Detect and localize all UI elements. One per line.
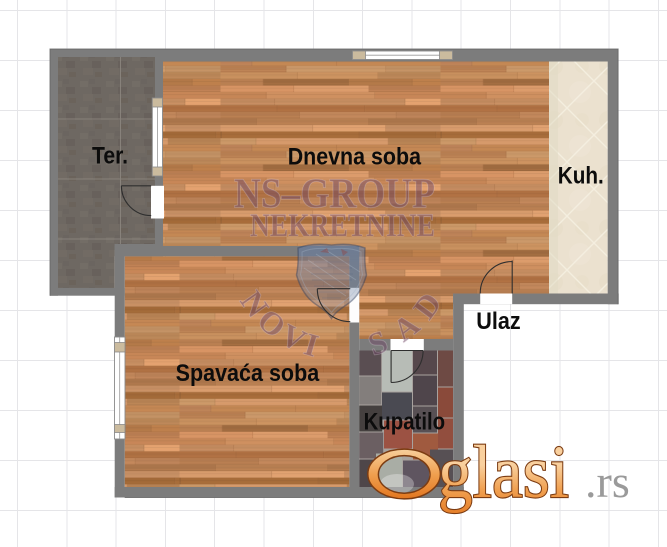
svg-text:glasi: glasi <box>438 431 569 514</box>
svg-text:NEKRETNINE: NEKRETNINE <box>250 208 435 244</box>
svg-text:Kuh.: Kuh. <box>558 163 604 190</box>
svg-text:.rs: .rs <box>585 456 630 507</box>
svg-text:Dnevna soba: Dnevna soba <box>288 144 422 171</box>
svg-text:Kupatilo: Kupatilo <box>364 409 446 436</box>
svg-text:Ter.: Ter. <box>92 143 128 170</box>
svg-text:Ulaz: Ulaz <box>476 308 520 335</box>
svg-text:Spavaća soba: Spavaća soba <box>176 360 320 387</box>
